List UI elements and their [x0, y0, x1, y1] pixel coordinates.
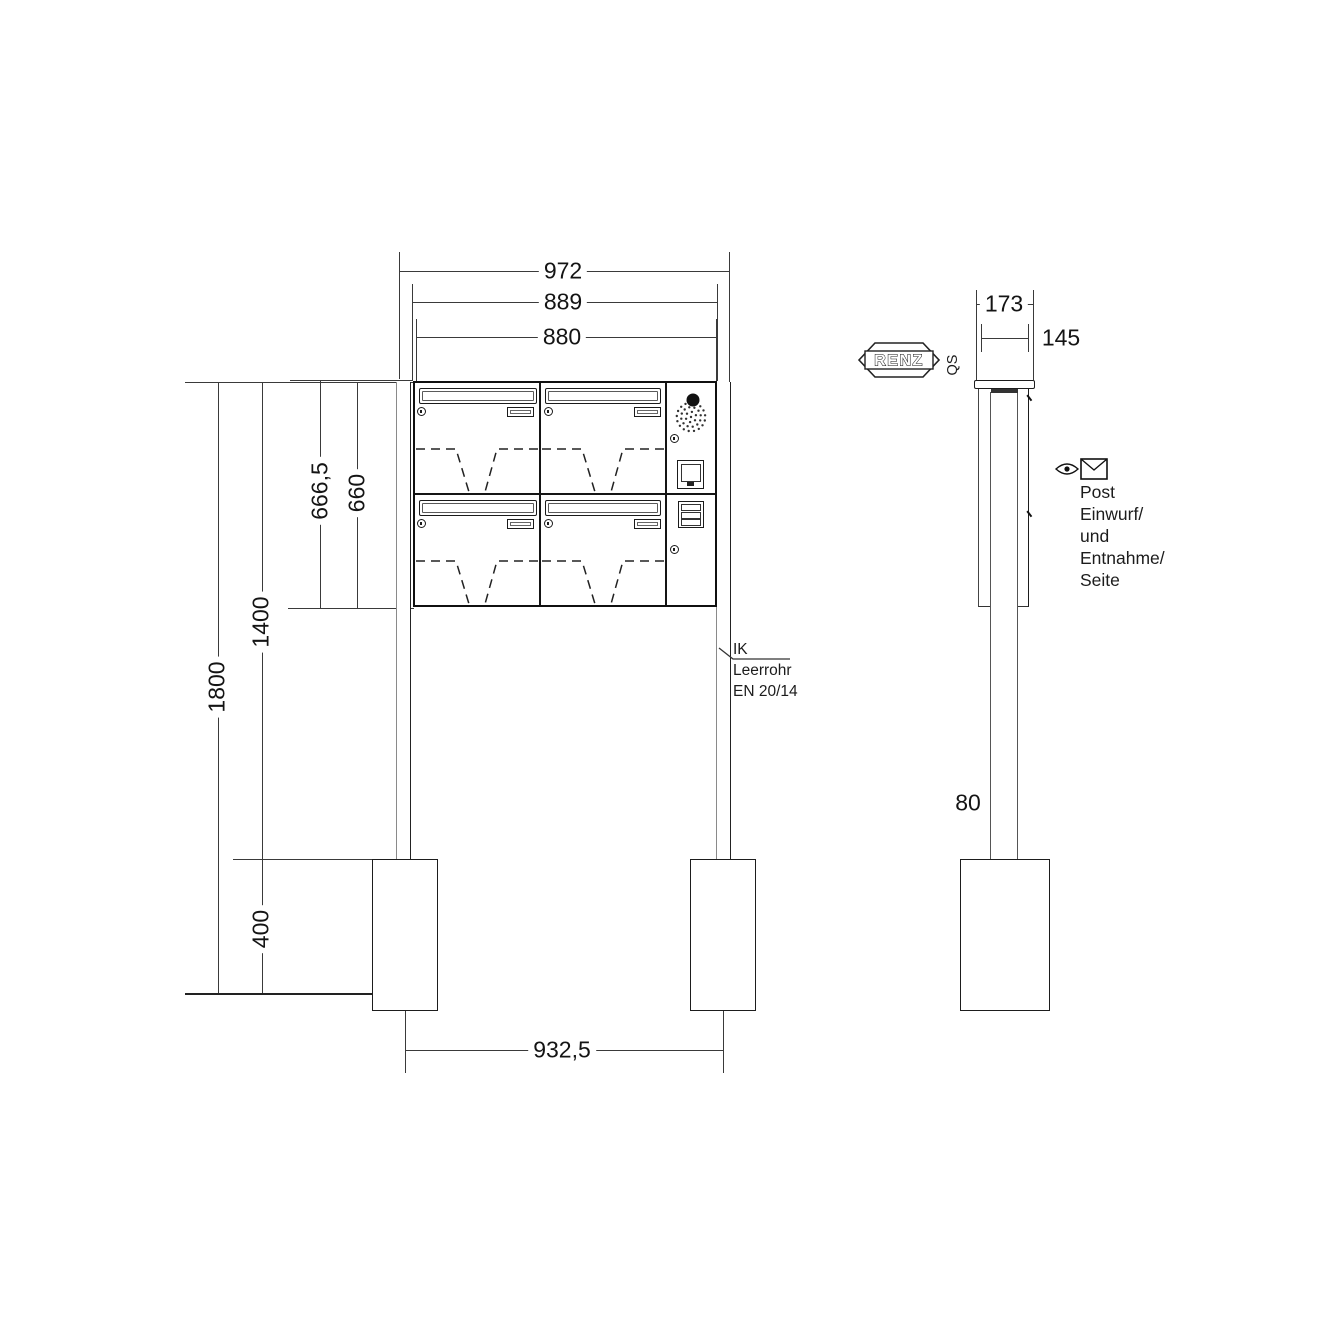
- extension-line: [729, 252, 730, 383]
- extension-line: [723, 1011, 724, 1073]
- foundation-top-extension-line: [233, 859, 372, 860]
- svg-text:RENZ: RENZ: [874, 353, 924, 370]
- dim-cabinet-width: 889: [539, 291, 587, 314]
- dimension-line: [981, 338, 1029, 339]
- side-post: [990, 392, 1018, 859]
- eye-icon: [1055, 461, 1079, 477]
- dim-height-with-cover: 666,5: [309, 457, 332, 525]
- lock-icon: [670, 434, 679, 443]
- extension-line: [1033, 290, 1034, 380]
- dim-foundation-height: 400: [250, 905, 273, 953]
- leader-note-leerrohr: Leerrohr: [733, 661, 792, 680]
- leader-note-en: EN 20/14: [733, 682, 798, 701]
- extension-line: [1028, 324, 1029, 352]
- side-note-line: Post: [1080, 482, 1115, 504]
- front-right-post: [716, 382, 731, 859]
- side-note-line: Entnahme/: [1080, 548, 1165, 570]
- extension-line: [412, 284, 413, 381]
- extension-line: [290, 380, 413, 381]
- dim-post-size: 80: [950, 792, 986, 815]
- lock-icon: [670, 545, 679, 554]
- envelope-icon: [1080, 458, 1108, 480]
- side-note-line: und: [1080, 526, 1109, 548]
- extension-line: [405, 1011, 406, 1073]
- intercom-module: [677, 460, 704, 489]
- ground-line: [185, 993, 396, 995]
- side-note-line: Seite: [1080, 570, 1120, 592]
- dim-height-cabinet: 660: [346, 469, 369, 517]
- renz-logo: RENZ: [857, 340, 941, 380]
- bell-button-panel: [678, 501, 704, 528]
- side-note-line: Einwurf/: [1080, 504, 1143, 526]
- qs-label: QS: [940, 350, 966, 380]
- speaker-camera-dot: [687, 394, 700, 407]
- extension-line: [716, 319, 717, 381]
- side-cap: [974, 380, 1035, 389]
- dim-cover-width: 972: [539, 260, 587, 283]
- dim-depth-overall: 173: [980, 293, 1028, 316]
- speaker-icon: [676, 402, 707, 433]
- extension-line: [416, 319, 417, 381]
- dim-depth-body: 145: [1037, 327, 1085, 350]
- dim-post-spacing: 932,5: [528, 1039, 596, 1062]
- dim-top-to-ground: 1800: [206, 656, 229, 717]
- dim-top-to-foundation: 1400: [250, 591, 273, 652]
- front-left-post: [396, 382, 411, 859]
- front-left-foundation: [372, 859, 438, 1011]
- dimension-line: [262, 382, 263, 993]
- side-cap-strip: [991, 389, 1018, 393]
- door-swing-marks: [413, 381, 717, 607]
- front-right-foundation: [690, 859, 756, 1011]
- side-foundation: [960, 859, 1050, 1011]
- extension-line: [717, 284, 718, 381]
- dim-boxes-width: 880: [538, 326, 586, 349]
- technical-drawing-sheet: 972 889 880 666,5 660 1400 400 1800 932,…: [0, 0, 1320, 1320]
- leader-note-ik: IK: [733, 640, 748, 659]
